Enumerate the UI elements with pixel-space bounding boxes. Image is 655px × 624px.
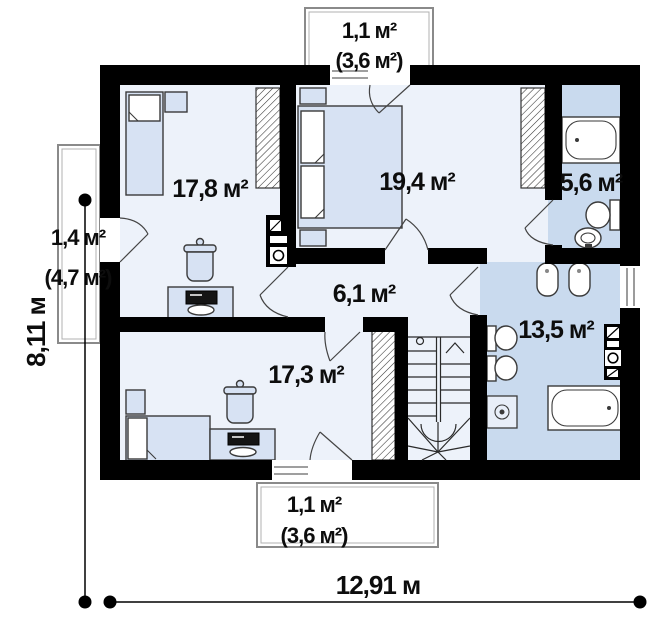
single-bed-icon bbox=[126, 416, 210, 461]
balcony-bottom-area-total: (3,6 м²) bbox=[281, 523, 349, 548]
keyboard-icon bbox=[230, 448, 256, 457]
wall-bedroom2-hall-left bbox=[296, 248, 385, 264]
monitor-icon bbox=[228, 433, 259, 445]
washbasin-icon bbox=[569, 263, 590, 296]
bathtub-icon bbox=[562, 117, 620, 163]
balcony-top-area: 1,1 м² bbox=[342, 18, 397, 43]
plant-pot-icon bbox=[184, 239, 216, 282]
wall-bedroom3-top-right bbox=[363, 317, 408, 332]
dimension-endpoint-dot bbox=[104, 596, 117, 609]
balcony-top-area-total: (3,6 м²) bbox=[336, 48, 404, 73]
dimension-endpoint-dot bbox=[634, 596, 647, 609]
window bbox=[620, 266, 640, 308]
sink-icon bbox=[575, 228, 601, 249]
toilet-icon bbox=[586, 200, 620, 230]
pillow bbox=[128, 418, 147, 459]
room-label-bedroom3: 17,3 м² bbox=[268, 361, 344, 389]
pillow bbox=[301, 111, 324, 163]
toilet-icon bbox=[487, 356, 517, 381]
desk-computer-icon bbox=[210, 429, 275, 460]
keyboard-icon bbox=[188, 305, 214, 315]
wardrobe-icon bbox=[372, 325, 395, 460]
balcony-left-area: 1,4 м² bbox=[51, 225, 106, 250]
nightstand-icon bbox=[300, 88, 326, 104]
monitor-icon bbox=[186, 291, 217, 304]
dimension-endpoint-dot bbox=[79, 194, 92, 207]
nightstand-icon bbox=[126, 390, 145, 414]
room-label-bathroom-large: 13,5 м² bbox=[518, 316, 594, 344]
wardrobe-icon bbox=[521, 88, 545, 188]
room-label-hallway: 6,1 м² bbox=[333, 280, 396, 308]
dimension-label-horizontal: 12,91 м bbox=[336, 570, 421, 600]
balcony-bottom-area: 1,1 м² bbox=[287, 492, 342, 517]
pillow bbox=[301, 166, 324, 218]
wall-bathrooms-divider bbox=[545, 248, 620, 264]
wall-bedroom2-hall-right bbox=[428, 248, 487, 264]
window bbox=[272, 460, 310, 480]
room-label-bathroom-small: 5,6 м² bbox=[560, 169, 623, 197]
dimension-horizontal: 12,91 м bbox=[104, 570, 647, 609]
nightstand-icon bbox=[300, 230, 326, 246]
wall-stairs-bathroom-large bbox=[470, 315, 487, 460]
desk-computer-icon bbox=[168, 287, 233, 318]
room-label-bedroom1: 17,8 м² bbox=[172, 175, 248, 203]
room-label-bedroom2: 19,4 м² bbox=[379, 168, 455, 196]
wall-stairs-left bbox=[395, 332, 408, 460]
dimension-label-vertical: 8,11 м bbox=[21, 297, 51, 367]
bathtub-icon bbox=[548, 386, 622, 430]
toilet-icon bbox=[487, 326, 517, 351]
floor-plan-page: 17,8 м² 19,4 м² 5,6 м² 6,1 м² 13,5 м² 17… bbox=[0, 0, 655, 624]
plant-pot-icon bbox=[224, 381, 256, 424]
washing-machine-icon bbox=[487, 396, 517, 428]
nightstand-icon bbox=[165, 92, 187, 112]
floor-plan-drawing: 17,8 м² 19,4 м² 5,6 м² 6,1 м² 13,5 м² 17… bbox=[0, 0, 655, 624]
balcony-left-area-total: (4,7 м²) bbox=[45, 265, 113, 290]
single-bed-icon bbox=[126, 92, 163, 195]
wall-outer-bottom bbox=[100, 460, 640, 480]
wall-bedroom3-top-left bbox=[120, 317, 325, 332]
washbasin-icon bbox=[537, 263, 558, 296]
double-bed-icon bbox=[298, 106, 402, 228]
wardrobe-icon bbox=[256, 88, 280, 188]
dimension-endpoint-dot bbox=[79, 596, 92, 609]
wall-bedroom1-bedroom2 bbox=[280, 85, 296, 215]
flue-block-icon bbox=[604, 324, 622, 380]
flue-block-icon bbox=[266, 215, 296, 267]
